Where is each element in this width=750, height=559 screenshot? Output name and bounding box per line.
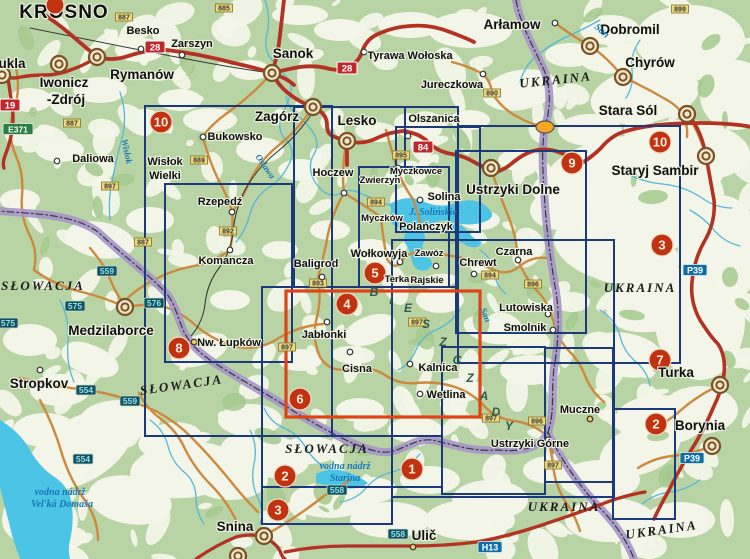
svg-text:885: 885 bbox=[218, 6, 230, 13]
svg-text:Starina: Starina bbox=[330, 473, 361, 484]
svg-text:Polańczyk: Polańczyk bbox=[399, 221, 454, 233]
svg-text:Rzepedź: Rzepedź bbox=[198, 196, 243, 208]
svg-text:Terka: Terka bbox=[385, 274, 410, 285]
svg-text:UKRAINA: UKRAINA bbox=[604, 280, 677, 295]
svg-text:Jabłonki: Jabłonki bbox=[302, 329, 347, 341]
svg-text:Rajskie: Rajskie bbox=[410, 275, 443, 286]
svg-text:Lesko: Lesko bbox=[337, 113, 376, 128]
svg-text:Iwonicz: Iwonicz bbox=[40, 75, 89, 90]
svg-text:894: 894 bbox=[484, 273, 496, 280]
svg-text:Zwierzyn: Zwierzyn bbox=[360, 175, 401, 186]
svg-text:887: 887 bbox=[118, 15, 130, 22]
svg-text:vodna nádrž: vodna nádrž bbox=[320, 461, 372, 472]
svg-text:Nw. Łupków: Nw. Łupków bbox=[197, 337, 261, 349]
svg-text:2: 2 bbox=[652, 417, 659, 432]
svg-text:892: 892 bbox=[222, 229, 234, 236]
svg-text:Czarna: Czarna bbox=[496, 246, 534, 258]
svg-text:897: 897 bbox=[281, 345, 293, 352]
svg-text:A: A bbox=[479, 389, 489, 403]
svg-text:559: 559 bbox=[123, 396, 137, 406]
svg-text:4: 4 bbox=[343, 297, 351, 312]
svg-text:Staryj Sambir: Staryj Sambir bbox=[611, 163, 699, 178]
svg-text:554: 554 bbox=[76, 454, 90, 464]
svg-text:UKRAINA: UKRAINA bbox=[528, 499, 601, 514]
svg-text:Komancza: Komancza bbox=[198, 255, 254, 267]
svg-text:84: 84 bbox=[418, 143, 429, 154]
svg-text:Jureczkowa: Jureczkowa bbox=[421, 79, 484, 91]
svg-text:Medzilaborce: Medzilaborce bbox=[68, 323, 154, 338]
svg-text:9: 9 bbox=[568, 156, 575, 171]
svg-text:S: S bbox=[422, 317, 430, 331]
svg-text:Ulič: Ulič bbox=[412, 528, 437, 543]
svg-text:Baligrod: Baligrod bbox=[294, 258, 339, 270]
svg-text:Besko: Besko bbox=[126, 25, 159, 37]
svg-text:887: 887 bbox=[66, 121, 78, 128]
svg-text:558: 558 bbox=[330, 485, 344, 495]
svg-text:Wisłok: Wisłok bbox=[147, 156, 183, 168]
svg-text:Ustrzyki Górne: Ustrzyki Górne bbox=[491, 438, 569, 450]
svg-text:-Zdrój: -Zdrój bbox=[47, 92, 85, 107]
svg-text:558: 558 bbox=[391, 529, 405, 539]
svg-text:Hoczew: Hoczew bbox=[313, 167, 354, 179]
svg-text:ukla: ukla bbox=[0, 56, 26, 71]
svg-text:Stropkov: Stropkov bbox=[10, 376, 69, 391]
svg-text:Y: Y bbox=[505, 419, 514, 433]
svg-text:P39: P39 bbox=[687, 265, 703, 275]
svg-text:2: 2 bbox=[281, 469, 288, 484]
svg-text:D: D bbox=[492, 405, 501, 419]
svg-text:890: 890 bbox=[486, 91, 498, 98]
svg-text:559: 559 bbox=[100, 266, 114, 276]
svg-text:Zawóz: Zawóz bbox=[414, 248, 443, 259]
svg-text:Ustrzyki Dolne: Ustrzyki Dolne bbox=[466, 182, 560, 197]
svg-text:Daliowa: Daliowa bbox=[72, 153, 114, 165]
svg-text:896: 896 bbox=[527, 282, 539, 289]
svg-text:B: B bbox=[370, 285, 379, 299]
svg-text:575: 575 bbox=[68, 301, 82, 311]
svg-text:896: 896 bbox=[531, 419, 543, 426]
svg-text:3: 3 bbox=[274, 503, 281, 518]
svg-text:6: 6 bbox=[296, 392, 303, 407]
svg-text:Bukowsko: Bukowsko bbox=[207, 131, 262, 143]
svg-text:vodna nádrž: vodna nádrž bbox=[35, 487, 87, 498]
svg-text:Myczków: Myczków bbox=[361, 213, 403, 224]
svg-text:Chyrów: Chyrów bbox=[625, 55, 675, 70]
svg-text:28: 28 bbox=[342, 64, 353, 75]
svg-text:887: 887 bbox=[137, 240, 149, 247]
svg-text:Tyrawa Wołoska: Tyrawa Wołoska bbox=[367, 50, 453, 62]
svg-text:SŁOWACJA: SŁOWACJA bbox=[285, 441, 369, 456]
svg-text:8: 8 bbox=[175, 341, 182, 356]
svg-text:Z: Z bbox=[465, 371, 474, 385]
svg-text:894: 894 bbox=[370, 200, 382, 207]
svg-text:Olszanica: Olszanica bbox=[408, 113, 460, 125]
svg-text:H13: H13 bbox=[482, 542, 499, 552]
svg-text:1: 1 bbox=[408, 462, 415, 477]
svg-text:SŁOWACJA: SŁOWACJA bbox=[1, 278, 85, 293]
svg-text:Z: Z bbox=[438, 335, 447, 349]
svg-text:Muczne: Muczne bbox=[560, 404, 600, 416]
svg-text:P39: P39 bbox=[684, 453, 700, 463]
svg-text:28: 28 bbox=[150, 43, 161, 54]
svg-text:889: 889 bbox=[193, 158, 205, 165]
svg-text:Wetlina: Wetlina bbox=[427, 389, 467, 401]
svg-text:Cisna: Cisna bbox=[342, 363, 373, 375]
svg-text:576: 576 bbox=[147, 298, 161, 308]
svg-text:575: 575 bbox=[1, 318, 15, 328]
svg-text:10: 10 bbox=[653, 135, 667, 150]
svg-text:Turka: Turka bbox=[658, 365, 694, 380]
svg-text:554: 554 bbox=[79, 385, 93, 395]
svg-text:Arłamow: Arłamow bbox=[483, 17, 541, 32]
svg-text:Chrewt: Chrewt bbox=[459, 257, 497, 269]
svg-text:10: 10 bbox=[154, 115, 168, 130]
svg-text:E: E bbox=[404, 301, 413, 315]
svg-text:Borynia: Borynia bbox=[675, 418, 726, 433]
svg-text:Vel'ká Domaša: Vel'ká Domaša bbox=[31, 499, 93, 510]
svg-text:Stara Sól: Stara Sól bbox=[599, 103, 658, 118]
svg-text:899: 899 bbox=[674, 7, 686, 14]
svg-text:Rymanów: Rymanów bbox=[110, 67, 174, 82]
svg-text:E371: E371 bbox=[8, 124, 28, 134]
svg-text:895: 895 bbox=[395, 153, 407, 160]
svg-text:Smolnik: Smolnik bbox=[504, 322, 548, 334]
svg-text:5: 5 bbox=[371, 266, 378, 281]
svg-text:Wielki: Wielki bbox=[149, 170, 181, 182]
svg-text:Snina: Snina bbox=[217, 519, 254, 534]
svg-text:19: 19 bbox=[5, 101, 16, 112]
svg-text:Zarszyn: Zarszyn bbox=[171, 38, 213, 50]
svg-text:J. Solińskie: J. Solińskie bbox=[408, 207, 457, 218]
svg-text:Sanok: Sanok bbox=[273, 46, 314, 61]
svg-text:Zagórz: Zagórz bbox=[255, 109, 300, 124]
svg-text:C: C bbox=[453, 353, 462, 367]
svg-text:897: 897 bbox=[547, 463, 559, 470]
svg-text:3: 3 bbox=[658, 238, 665, 253]
svg-text:897: 897 bbox=[104, 184, 116, 191]
svg-text:Solina: Solina bbox=[427, 191, 461, 203]
svg-text:893: 893 bbox=[312, 281, 324, 288]
svg-text:Wołkowyja: Wołkowyja bbox=[351, 248, 409, 260]
svg-text:Lutowiska: Lutowiska bbox=[499, 302, 554, 314]
